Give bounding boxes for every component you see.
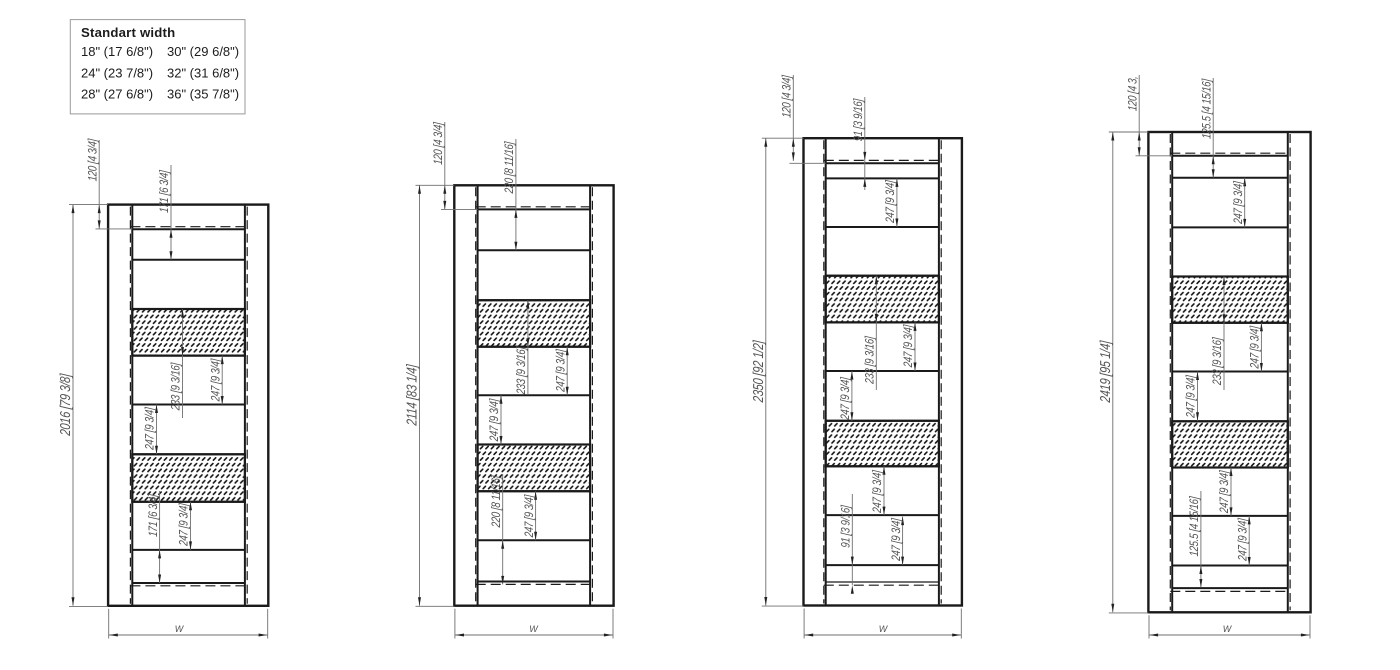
svg-text:91 [3 9/16]: 91 [3 9/16] — [852, 98, 865, 142]
svg-text:220 [8 11/16]: 220 [8 11/16] — [503, 140, 516, 194]
svg-text:247 [9 3/4]: 247 [9 3/4] — [144, 406, 157, 451]
svg-text:2114 [83 1/4]: 2114 [83 1/4] — [403, 363, 420, 426]
svg-text:18" (17 6/8"): 18" (17 6/8") — [81, 44, 153, 59]
svg-text:247 [9 3/4]: 247 [9 3/4] — [890, 517, 903, 562]
svg-text:247 [9 3/4]: 247 [9 3/4] — [839, 376, 852, 421]
svg-text:125.5 [4 15/16]: 125.5 [4 15/16] — [1200, 78, 1213, 140]
svg-text:247 [9 3/4]: 247 [9 3/4] — [902, 324, 915, 369]
svg-text:30" (29 6/8"): 30" (29 6/8") — [167, 44, 239, 59]
svg-text:233 [9 3/16]: 233 [9 3/16] — [170, 362, 183, 412]
svg-text:247 [9 3/4]: 247 [9 3/4] — [554, 348, 567, 393]
svg-text:120 [4 3,: 120 [4 3, — [1126, 76, 1139, 112]
svg-text:120 [4 3/4]: 120 [4 3/4] — [86, 138, 99, 182]
svg-text:247 [9 3/4]: 247 [9 3/4] — [871, 469, 884, 514]
svg-text:125.5 [4 15/16]: 125.5 [4 15/16] — [1188, 495, 1201, 557]
svg-text:120 [4 3/4]: 120 [4 3/4] — [432, 121, 445, 165]
svg-text:247 [9 3/4]: 247 [9 3/4] — [884, 179, 897, 224]
svg-text:247 [9 3/4]: 247 [9 3/4] — [1218, 469, 1231, 514]
svg-text:24" (23 7/8"): 24" (23 7/8") — [81, 65, 153, 80]
svg-text:233 [9 3/16]: 233 [9 3/16] — [515, 346, 528, 396]
svg-text:233 [9 3/16]: 233 [9 3/16] — [863, 335, 876, 385]
svg-text:2016 [79 3/8]: 2016 [79 3/8] — [57, 373, 74, 437]
svg-text:247 [9 3/4]: 247 [9 3/4] — [1249, 325, 1262, 370]
svg-text:247 [9 3/4]: 247 [9 3/4] — [1185, 374, 1198, 419]
svg-text:32" (31 6/8"): 32" (31 6/8") — [167, 65, 239, 80]
svg-text:2419 [95 1/4]: 2419 [95 1/4] — [1097, 340, 1114, 404]
svg-text:36" (35 7/8"): 36" (35 7/8") — [167, 87, 239, 102]
svg-text:247 [9 3/4]: 247 [9 3/4] — [1232, 180, 1245, 225]
svg-text:28" (27 6/8"): 28" (27 6/8") — [81, 87, 153, 102]
svg-text:247 [9 3/4]: 247 [9 3/4] — [488, 398, 501, 443]
svg-text:220 [8 11/16]: 220 [8 11/16] — [490, 474, 503, 528]
svg-text:233 [9 3/16]: 233 [9 3/16] — [1211, 336, 1224, 386]
svg-text:247 [9 3/4]: 247 [9 3/4] — [523, 494, 536, 539]
svg-text:91 [3 9/16]: 91 [3 9/16] — [839, 504, 852, 548]
svg-text:Standart width: Standart width — [81, 25, 175, 40]
svg-text:171 [6 3/4]: 171 [6 3/4] — [158, 169, 171, 213]
svg-text:247 [9 3/4]: 247 [9 3/4] — [1236, 517, 1249, 562]
svg-text:247 [9 3/4]: 247 [9 3/4] — [178, 502, 191, 547]
svg-text:247 [9 3/4]: 247 [9 3/4] — [209, 358, 222, 403]
svg-text:120 [4 3/4]: 120 [4 3/4] — [780, 74, 793, 118]
svg-text:2350 [92 1/2]: 2350 [92 1/2] — [750, 339, 767, 403]
svg-text:171 [6 3/4]: 171 [6 3/4] — [147, 493, 160, 537]
